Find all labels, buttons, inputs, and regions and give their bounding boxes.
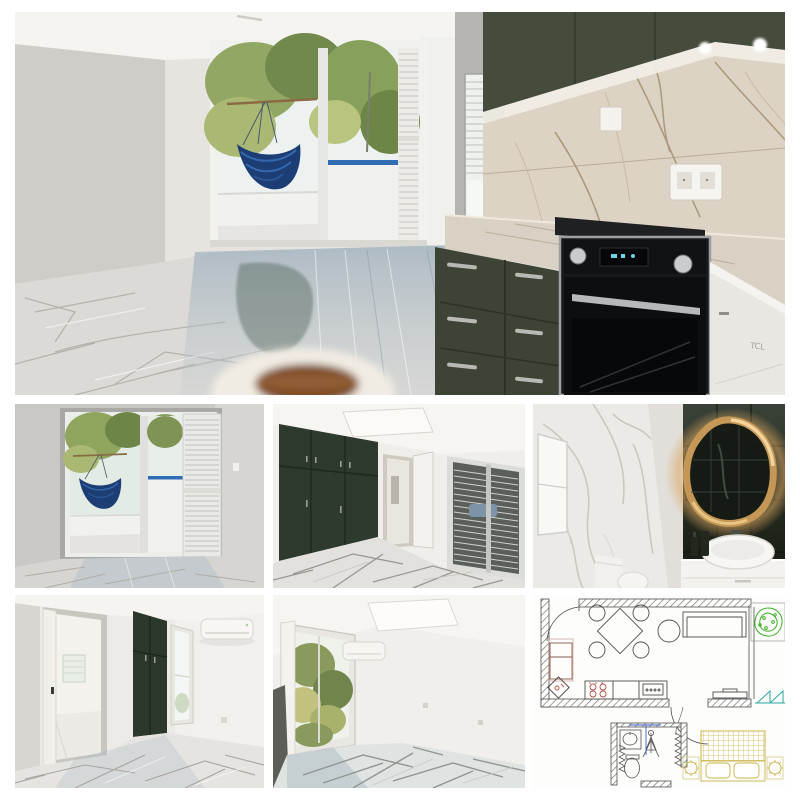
pillow-left bbox=[706, 763, 730, 778]
corner-wardrobe bbox=[133, 611, 167, 737]
built-in-oven bbox=[560, 237, 710, 395]
green-wardrobe bbox=[279, 424, 378, 561]
photo-bedroom-ac bbox=[15, 595, 264, 788]
photo-collage: TCL bbox=[0, 0, 800, 800]
open-doorway bbox=[383, 452, 433, 548]
light-switch bbox=[600, 107, 622, 131]
bathroom-scene bbox=[533, 404, 785, 588]
floor-plan-scene bbox=[533, 595, 785, 788]
ceiling-light-panel bbox=[368, 599, 458, 631]
bedroom-ac-scene bbox=[15, 595, 264, 788]
car-through-window bbox=[469, 504, 497, 517]
floor bbox=[15, 556, 264, 588]
door-mullion bbox=[318, 48, 328, 240]
kitchen-window-shutter bbox=[465, 74, 485, 222]
photo-bathroom bbox=[533, 404, 785, 588]
shuttered-window bbox=[447, 456, 525, 580]
open-door-panel bbox=[413, 452, 433, 548]
narrow-window bbox=[171, 625, 193, 725]
photo-window-room bbox=[273, 595, 525, 788]
wall-socket bbox=[221, 717, 227, 723]
air-conditioner bbox=[199, 619, 255, 646]
balcony-sliding-door bbox=[204, 33, 427, 247]
wardrobe-bedroom-scene bbox=[273, 404, 525, 588]
air-conditioner bbox=[343, 642, 385, 660]
pillow-right bbox=[734, 763, 759, 778]
kitchen-area: TCL bbox=[435, 12, 785, 395]
balcony-room-scene bbox=[15, 404, 264, 588]
open-window bbox=[281, 621, 355, 757]
photo-balcony-room bbox=[15, 404, 264, 588]
window-room-scene bbox=[273, 595, 525, 788]
double-socket bbox=[670, 164, 722, 200]
photo-wardrobe-bedroom bbox=[273, 404, 525, 588]
wall-socket bbox=[233, 463, 239, 471]
photo-living-kitchen: TCL bbox=[15, 12, 785, 395]
wall-socket-2 bbox=[478, 720, 483, 725]
living-kitchen-scene: TCL bbox=[15, 12, 785, 395]
louver-shutter-door bbox=[183, 414, 221, 560]
wall-socket bbox=[423, 703, 428, 708]
sliding-door bbox=[60, 408, 222, 560]
louver-shutter bbox=[398, 48, 419, 240]
ceiling-panel bbox=[343, 408, 433, 437]
open-door-panel bbox=[43, 609, 56, 767]
floor-plan-drawing bbox=[533, 595, 785, 788]
hall-doorway bbox=[43, 607, 107, 767]
